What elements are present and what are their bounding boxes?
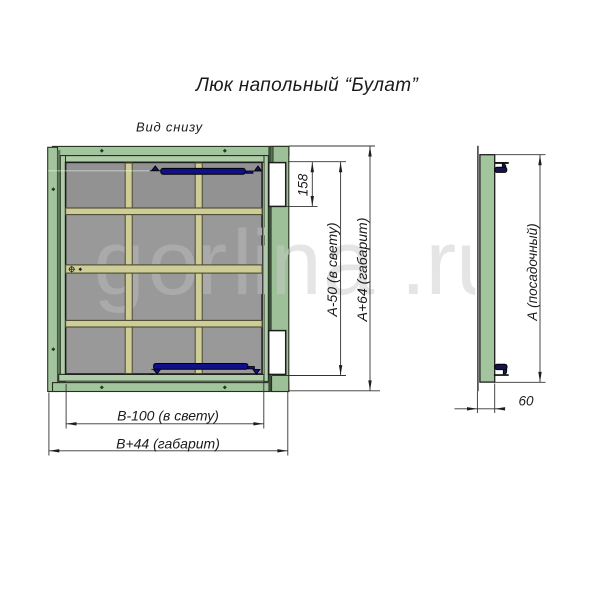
svg-text:А-50 (в свету): А-50 (в свету) xyxy=(324,223,340,318)
svg-text:А+64 (габарит): А+64 (габарит) xyxy=(354,218,370,323)
svg-text:В-100 (в свету): В-100 (в свету) xyxy=(117,408,219,424)
svg-text:Люк напольный “Булат”: Люк напольный “Булат” xyxy=(194,75,420,96)
svg-text:В+44 (габарит): В+44 (габарит) xyxy=(116,435,220,451)
svg-text:Вид снизу: Вид снизу xyxy=(136,120,204,135)
svg-text:60: 60 xyxy=(518,394,534,409)
svg-text:158: 158 xyxy=(296,173,311,196)
svg-text:А (посадочный): А (посадочный) xyxy=(525,223,540,321)
